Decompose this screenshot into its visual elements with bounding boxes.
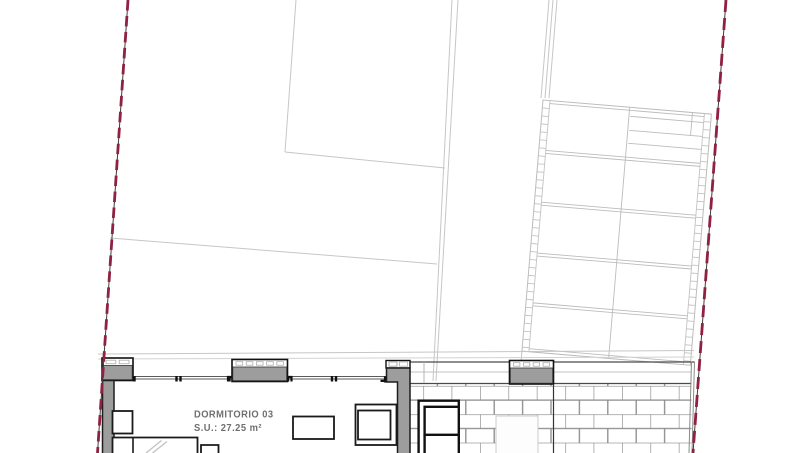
svg-text:S.U.: 27.25 m²: S.U.: 27.25 m² (194, 423, 262, 434)
svg-text:DORMITORIO 03: DORMITORIO 03 (194, 410, 274, 421)
